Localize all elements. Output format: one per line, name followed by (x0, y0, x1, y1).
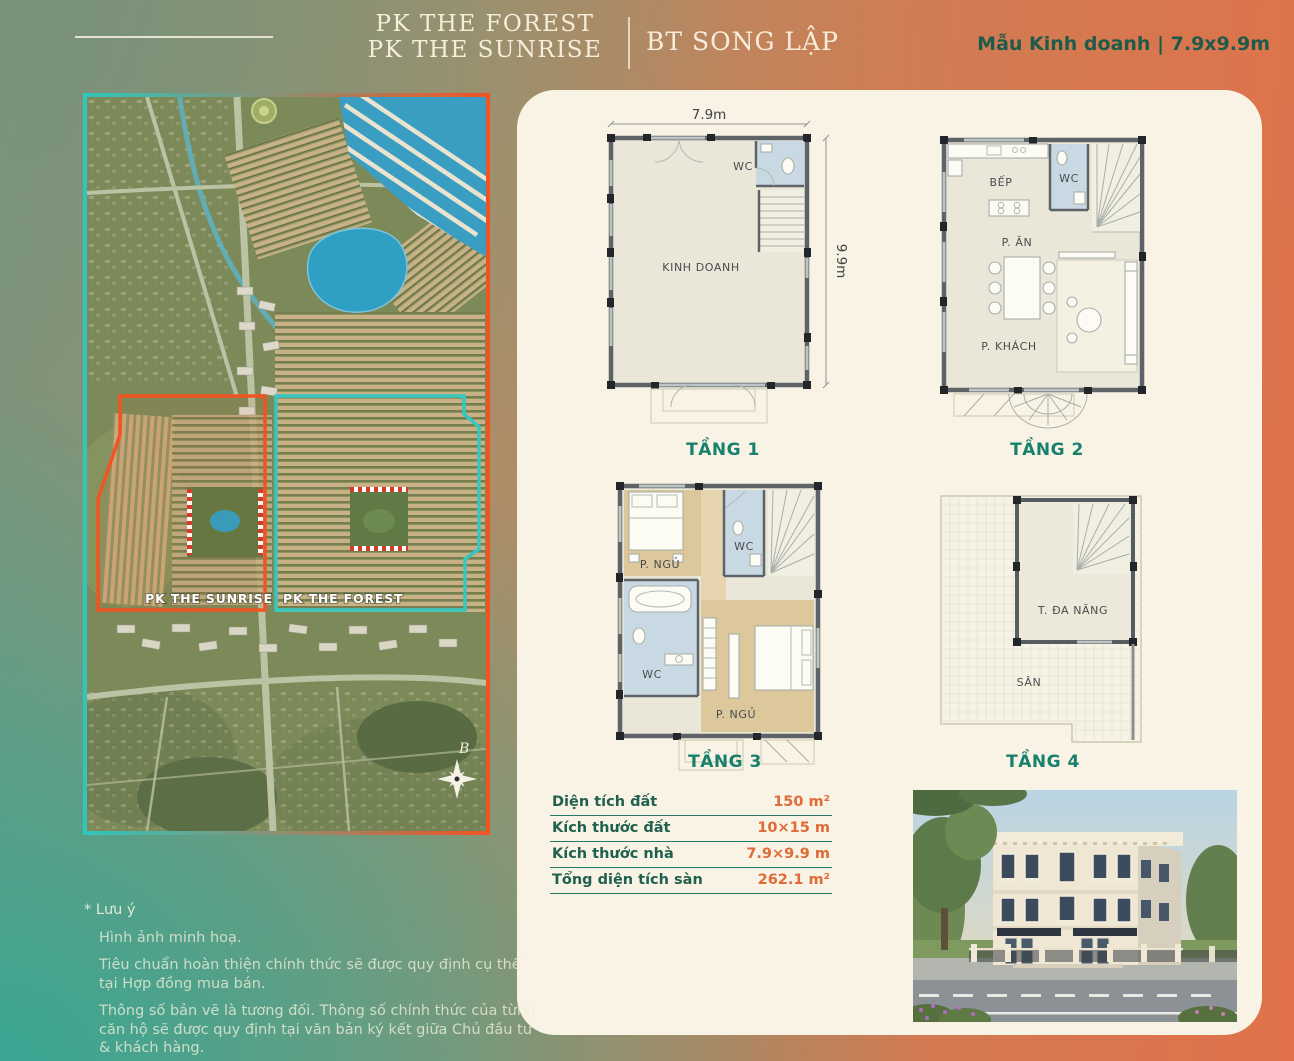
spec-label: Kích thước nhà (552, 846, 674, 862)
footnote-title: * Lưu ý (84, 901, 540, 920)
spec-table: Diện tích đất 150 m² Kích thước đất 10×1… (550, 790, 832, 894)
footnote-line-2: Tiêu chuẩn hoàn thiện chính thức sẽ được… (84, 956, 540, 993)
floor2-kitchen-label: BẾP (990, 175, 1013, 189)
map-zone-label-forest: PK THE FOREST (283, 591, 403, 606)
spec-row-house-size: Kích thước nhà 7.9×9.9 m (550, 842, 832, 868)
brochure-page: PK THE FOREST PK THE SUNRISE BT SONG LẬP… (0, 0, 1294, 1061)
map-lake (308, 228, 407, 312)
zone-outline-sunrise (98, 396, 265, 610)
spec-row-land-area: Diện tích đất 150 m² (550, 790, 832, 816)
floor-plan-1-drawing: 7.9m 9.9m (593, 108, 853, 443)
project-title: PK THE FOREST PK THE SUNRISE (360, 11, 610, 63)
model-info: Mẫu Kinh doanh | 7.9x9.9m (850, 33, 1270, 55)
spec-row-floor-area: Tổng diện tích sàn 262.1 m² (550, 868, 832, 894)
spec-value: 7.9×9.9 m (746, 846, 830, 862)
floor-plan-1: 7.9m 9.9m (593, 108, 853, 447)
floor-plan-4: T. ĐA NĂNG SÂN (927, 462, 1177, 801)
house-render-art (913, 790, 1237, 1022)
floor1-wc-label: WC (733, 160, 753, 173)
spec-label: Diện tích đất (552, 794, 657, 810)
floor-plan-2-drawing: BẾP WC P. ĂN (929, 112, 1179, 452)
floor-4-title: TẦNG 4 (943, 752, 1143, 772)
floor4-yard-label: SÂN (1017, 676, 1042, 689)
map-grid-main (275, 312, 485, 612)
floor3-wc2-label: WC (642, 668, 662, 681)
project-title-line2: PK THE SUNRISE (360, 37, 610, 63)
floor3-wc1-label: WC (734, 540, 754, 553)
house-render (913, 790, 1237, 1022)
project-title-line1: PK THE FOREST (360, 11, 610, 37)
spec-value: 10×15 m (757, 820, 830, 836)
floor-1-title: TẦNG 1 (623, 440, 823, 460)
map-park-forest (350, 487, 408, 551)
dim-depth-label: 9.9m (833, 244, 849, 279)
compass-north-label: B (458, 741, 469, 757)
title-divider (628, 17, 630, 69)
floor4-multi-label: T. ĐA NĂNG (1037, 604, 1108, 617)
floor2-dining-label: P. ĂN (1002, 236, 1033, 249)
floor-plan-4-drawing: T. ĐA NĂNG SÂN (927, 462, 1177, 797)
masterplan-map-art: PK THE SUNRISE PK THE FOREST B (87, 97, 486, 831)
floor-plan-2: BẾP WC P. ĂN (929, 112, 1179, 456)
dim-width-label: 7.9m (692, 108, 727, 123)
spec-label: Tổng diện tích sàn (552, 872, 703, 888)
footnote-line-1: Hình ảnh minh hoạ. (84, 929, 540, 948)
product-type-title: BT SONG LẬP (646, 27, 839, 56)
footnote-line-3: Thông số bản vẽ là tương đối. Thông số c… (84, 1002, 540, 1058)
floor-plan-3-drawing: P. NGỦ WC (605, 458, 855, 793)
spec-value: 150 m² (773, 794, 830, 810)
floor3-bed2-label: P. NGỦ (716, 707, 756, 721)
spec-value: 262.1 m² (758, 872, 830, 888)
map-zone-label-sunrise: PK THE SUNRISE (145, 591, 273, 606)
masterplan-map: PK THE SUNRISE PK THE FOREST B (87, 97, 486, 831)
floor3-bed1-label: P. NGỦ (640, 557, 680, 571)
content-panel: 7.9m 9.9m (517, 90, 1262, 1035)
floor2-living-label: P. KHÁCH (981, 340, 1036, 353)
spec-label: Kích thước đất (552, 820, 670, 836)
floor2-wc-label: WC (1059, 172, 1079, 185)
floor-3-title: TẦNG 3 (625, 752, 825, 772)
floor-2-title: TẦNG 2 (947, 440, 1147, 460)
footnotes: * Lưu ý Hình ảnh minh hoạ. Tiêu chuẩn ho… (84, 901, 540, 1061)
masterplan-map-frame: PK THE SUNRISE PK THE FOREST B (83, 93, 490, 835)
header-rule-line (75, 36, 273, 38)
spec-row-land-size: Kích thước đất 10×15 m (550, 816, 832, 842)
floor-plan-3: P. NGỦ WC (605, 458, 855, 797)
floor1-main-label: KINH DOANH (662, 261, 739, 274)
